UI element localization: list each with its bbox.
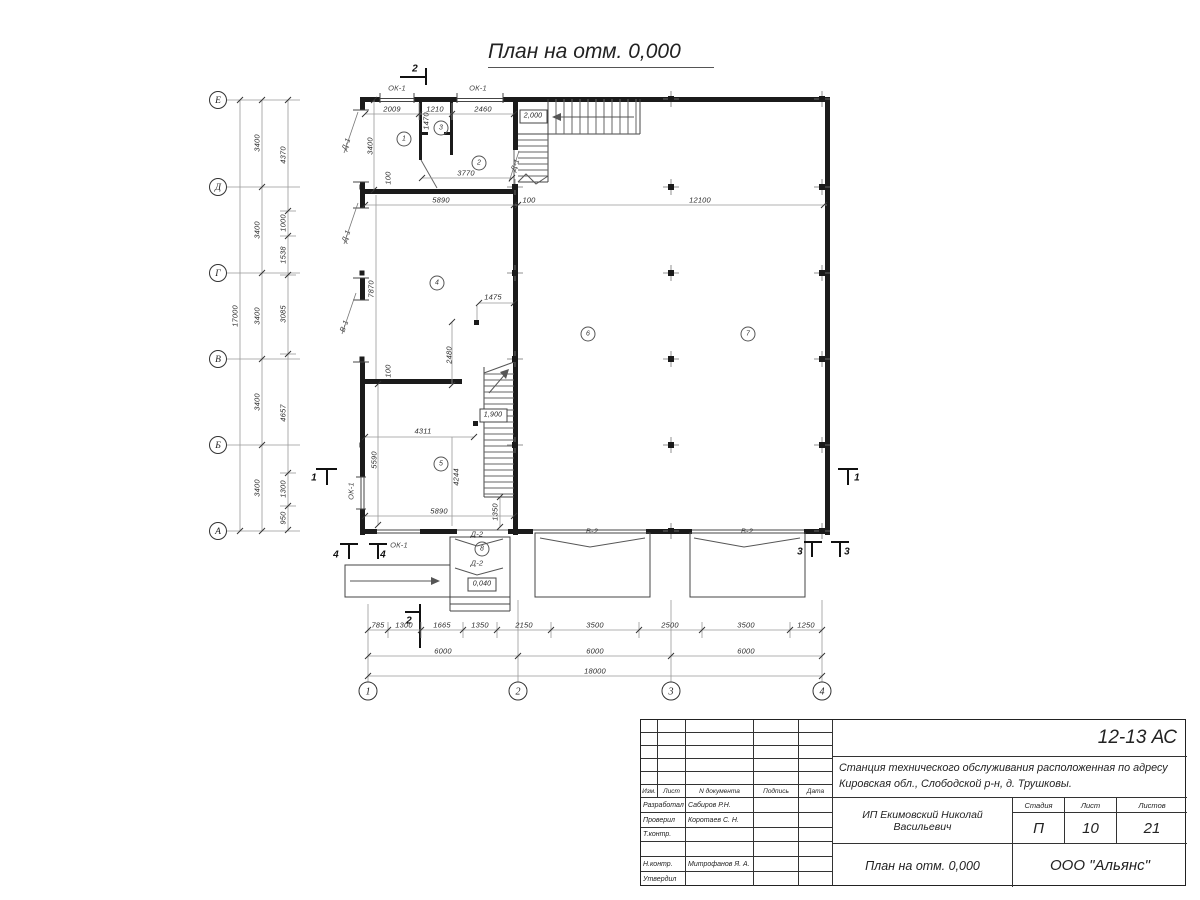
opening-label: ОК-1: [469, 84, 487, 93]
dimension-label: 100: [522, 196, 535, 205]
sheet-label: Лист: [1065, 798, 1117, 813]
revision-cell: [641, 772, 658, 785]
person-name: Сабиров Р.Н.: [686, 798, 754, 813]
dimension-label: 3400: [253, 134, 262, 152]
revision-cell: [754, 772, 799, 785]
dimension-label: 1000: [279, 214, 288, 232]
document-code: 12-13 АС: [833, 720, 1187, 757]
room-number: 4: [430, 276, 445, 291]
revision-header-cell: Изм.: [641, 785, 658, 798]
axis-letter: В: [215, 355, 221, 365]
role-label: Разработал: [641, 798, 686, 813]
room-number: 3: [434, 121, 449, 136]
company-name: ООО "Альянс": [1013, 844, 1187, 887]
sheet-number: 10: [1065, 813, 1117, 844]
dimension-label: 17000: [231, 305, 240, 327]
person-name: [686, 872, 754, 886]
dimension-label: 4370: [279, 146, 288, 164]
revision-cell: [799, 720, 832, 733]
section-label: 1: [854, 473, 860, 484]
revision-cell: [658, 720, 686, 733]
section-label: 4: [380, 550, 386, 561]
dimension-label: 18000: [584, 667, 606, 676]
date-cell: [799, 872, 832, 886]
revision-header-cell: Подпись: [754, 785, 799, 798]
axis-letter: А: [214, 527, 221, 537]
date-cell: [799, 813, 832, 828]
dimension-label: 1350: [491, 503, 500, 521]
dimension-label: 3400: [253, 393, 262, 411]
dimension-label: 100: [384, 171, 393, 184]
title-block: Изм.ЛистN документаПодписьДата Разработа…: [640, 719, 1186, 886]
dimension-label: 950: [279, 511, 288, 524]
revision-cell: [641, 733, 658, 746]
dimension-label: 1475: [484, 293, 502, 302]
role-label: [641, 842, 686, 857]
dimension-label: 5590: [370, 451, 379, 469]
dimension-label: 1470: [422, 112, 431, 130]
revision-cell: [658, 733, 686, 746]
dimension-label: 1665: [433, 621, 451, 630]
revision-cell: [754, 720, 799, 733]
date-cell: [799, 828, 832, 842]
dimension-label: 5890: [430, 507, 448, 516]
sheet-title: План на отм. 0,000: [833, 844, 1012, 887]
dimension-label: 1250: [797, 621, 815, 630]
signature-rows: РазработалСабиров Р.Н.ПроверилКоротаев С…: [641, 798, 832, 886]
person-name: Митрофанов Я. А.: [686, 857, 754, 872]
revision-cell: [799, 746, 832, 759]
revision-header-cell: Лист: [658, 785, 686, 798]
date-cell: [799, 857, 832, 872]
revision-table: [641, 720, 832, 785]
revision-cell: [641, 746, 658, 759]
elevation-value: 1,900: [484, 412, 503, 419]
opening-label: Д-2: [471, 530, 484, 539]
role-label: Н.контр.: [641, 857, 686, 872]
opening-label: Д-2: [471, 559, 484, 568]
revision-cell: [641, 759, 658, 772]
revision-cell: [799, 759, 832, 772]
axis-number: 2: [516, 687, 521, 698]
revision-cell: [686, 772, 754, 785]
client-name: ИП Екимовский Николай Васильевич: [833, 798, 1012, 844]
elevation-value: 0,040: [473, 581, 492, 588]
dimension-label: 785: [371, 621, 384, 630]
dimension-label: 3500: [586, 621, 604, 630]
revision-header-cell: Дата: [799, 785, 832, 798]
revision-cell: [658, 772, 686, 785]
room-number: 5: [434, 457, 449, 472]
signature-cell: [754, 798, 799, 813]
room-number: 1: [397, 132, 412, 147]
dimension-label: 3085: [279, 305, 288, 323]
revision-cell: [686, 720, 754, 733]
dimension-label: 1350: [471, 621, 489, 630]
revision-header-row: Изм.ЛистN документаПодписьДата: [641, 785, 832, 798]
dimension-label: 2500: [661, 621, 679, 630]
opening-label: В-2: [741, 527, 753, 536]
axis-letter: Б: [214, 441, 221, 451]
revision-cell: [686, 733, 754, 746]
dimension-label: 4311: [415, 427, 432, 436]
section-label: 3: [844, 547, 850, 558]
dimension-label: 2460: [474, 105, 492, 114]
revision-header-cell: N документа: [686, 785, 754, 798]
title-block-right: 12-13 АС Станция технического обслуживан…: [833, 720, 1187, 885]
section-label: 2: [406, 616, 412, 627]
sheets-total: 21: [1117, 813, 1187, 844]
revision-cell: [799, 733, 832, 746]
revision-cell: [686, 746, 754, 759]
signature-cell: [754, 842, 799, 857]
revision-cell: [641, 720, 658, 733]
section-label: 4: [333, 550, 339, 561]
page-title: План на отм. 0,000: [488, 40, 714, 68]
axis-number: 4: [820, 687, 825, 698]
section-label: 3: [797, 547, 803, 558]
dimension-label: 2480: [445, 346, 454, 364]
room-number: 2: [472, 156, 487, 171]
axis-letter: Г: [214, 269, 221, 279]
date-cell: [799, 798, 832, 813]
revision-cell: [658, 746, 686, 759]
dimension-label: 3770: [457, 169, 475, 178]
dimension-label: 2150: [515, 621, 533, 630]
dimension-label: 1300: [279, 480, 288, 498]
section-label: 2: [412, 64, 418, 75]
opening-label: В-2: [586, 527, 598, 536]
dimension-label: 3400: [253, 221, 262, 239]
revision-cell: [754, 746, 799, 759]
revision-cell: [686, 759, 754, 772]
date-cell: [799, 842, 832, 857]
person-name: [686, 842, 754, 857]
dimension-label: 6000: [434, 647, 452, 656]
revision-cell: [754, 733, 799, 746]
dimension-label: 100: [384, 364, 393, 377]
dimension-label: 6000: [737, 647, 755, 656]
dimension-label: 3500: [737, 621, 755, 630]
axis-number: 1: [366, 687, 371, 698]
dimension-label: 2009: [383, 105, 401, 114]
signature-cell: [754, 813, 799, 828]
dimension-label: 3400: [253, 307, 262, 325]
dimension-label: 3400: [253, 479, 262, 497]
room-number: 6: [581, 327, 596, 342]
role-label: Т.контр.: [641, 828, 686, 842]
room-number: 7: [741, 327, 756, 342]
opening-label: ОК-1: [388, 84, 406, 93]
role-label: Утвердил: [641, 872, 686, 886]
title-block-left-table: Изм.ЛистN документаПодписьДата Разработа…: [641, 720, 833, 885]
signature-cell: [754, 857, 799, 872]
revision-cell: [799, 772, 832, 785]
project-description-line2: Кировская обл., Слободской р-н, д. Трушк…: [839, 776, 1183, 792]
revision-cell: [658, 759, 686, 772]
drawing-sheet: ЕДГВБА1234 План на отм. 0,000 2009121024…: [0, 0, 1200, 900]
stage-value: П: [1013, 813, 1065, 844]
person-name: Коротаев С. Н.: [686, 813, 754, 828]
dimension-label: 4244: [452, 468, 461, 486]
project-description-line1: Станция технического обслуживания распол…: [839, 760, 1183, 776]
axis-letter: Д: [214, 183, 222, 193]
axis-number: 3: [668, 687, 674, 698]
dimension-label: 3400: [366, 137, 375, 155]
dimension-label: 1538: [279, 246, 288, 264]
opening-label: ОК-1: [347, 482, 356, 500]
axis-letter: Е: [214, 96, 221, 106]
opening-label: ОК-1: [390, 541, 408, 550]
section-label: 1: [311, 473, 317, 484]
dimension-label: 7870: [367, 280, 376, 298]
dimension-label: 6000: [586, 647, 604, 656]
sheets-label: Листов: [1117, 798, 1187, 813]
dimension-label: 12100: [689, 196, 711, 205]
signature-cell: [754, 828, 799, 842]
elevation-value: 2,000: [524, 113, 543, 120]
dimension-label: 4657: [279, 404, 288, 422]
person-name: [686, 828, 754, 842]
revision-cell: [754, 759, 799, 772]
room-number: 8: [475, 542, 490, 557]
stage-label: Стадия: [1013, 798, 1065, 813]
project-description: Станция технического обслуживания распол…: [833, 757, 1187, 798]
dimension-label: 5890: [432, 196, 450, 205]
signature-cell: [754, 872, 799, 886]
role-label: Проверил: [641, 813, 686, 828]
